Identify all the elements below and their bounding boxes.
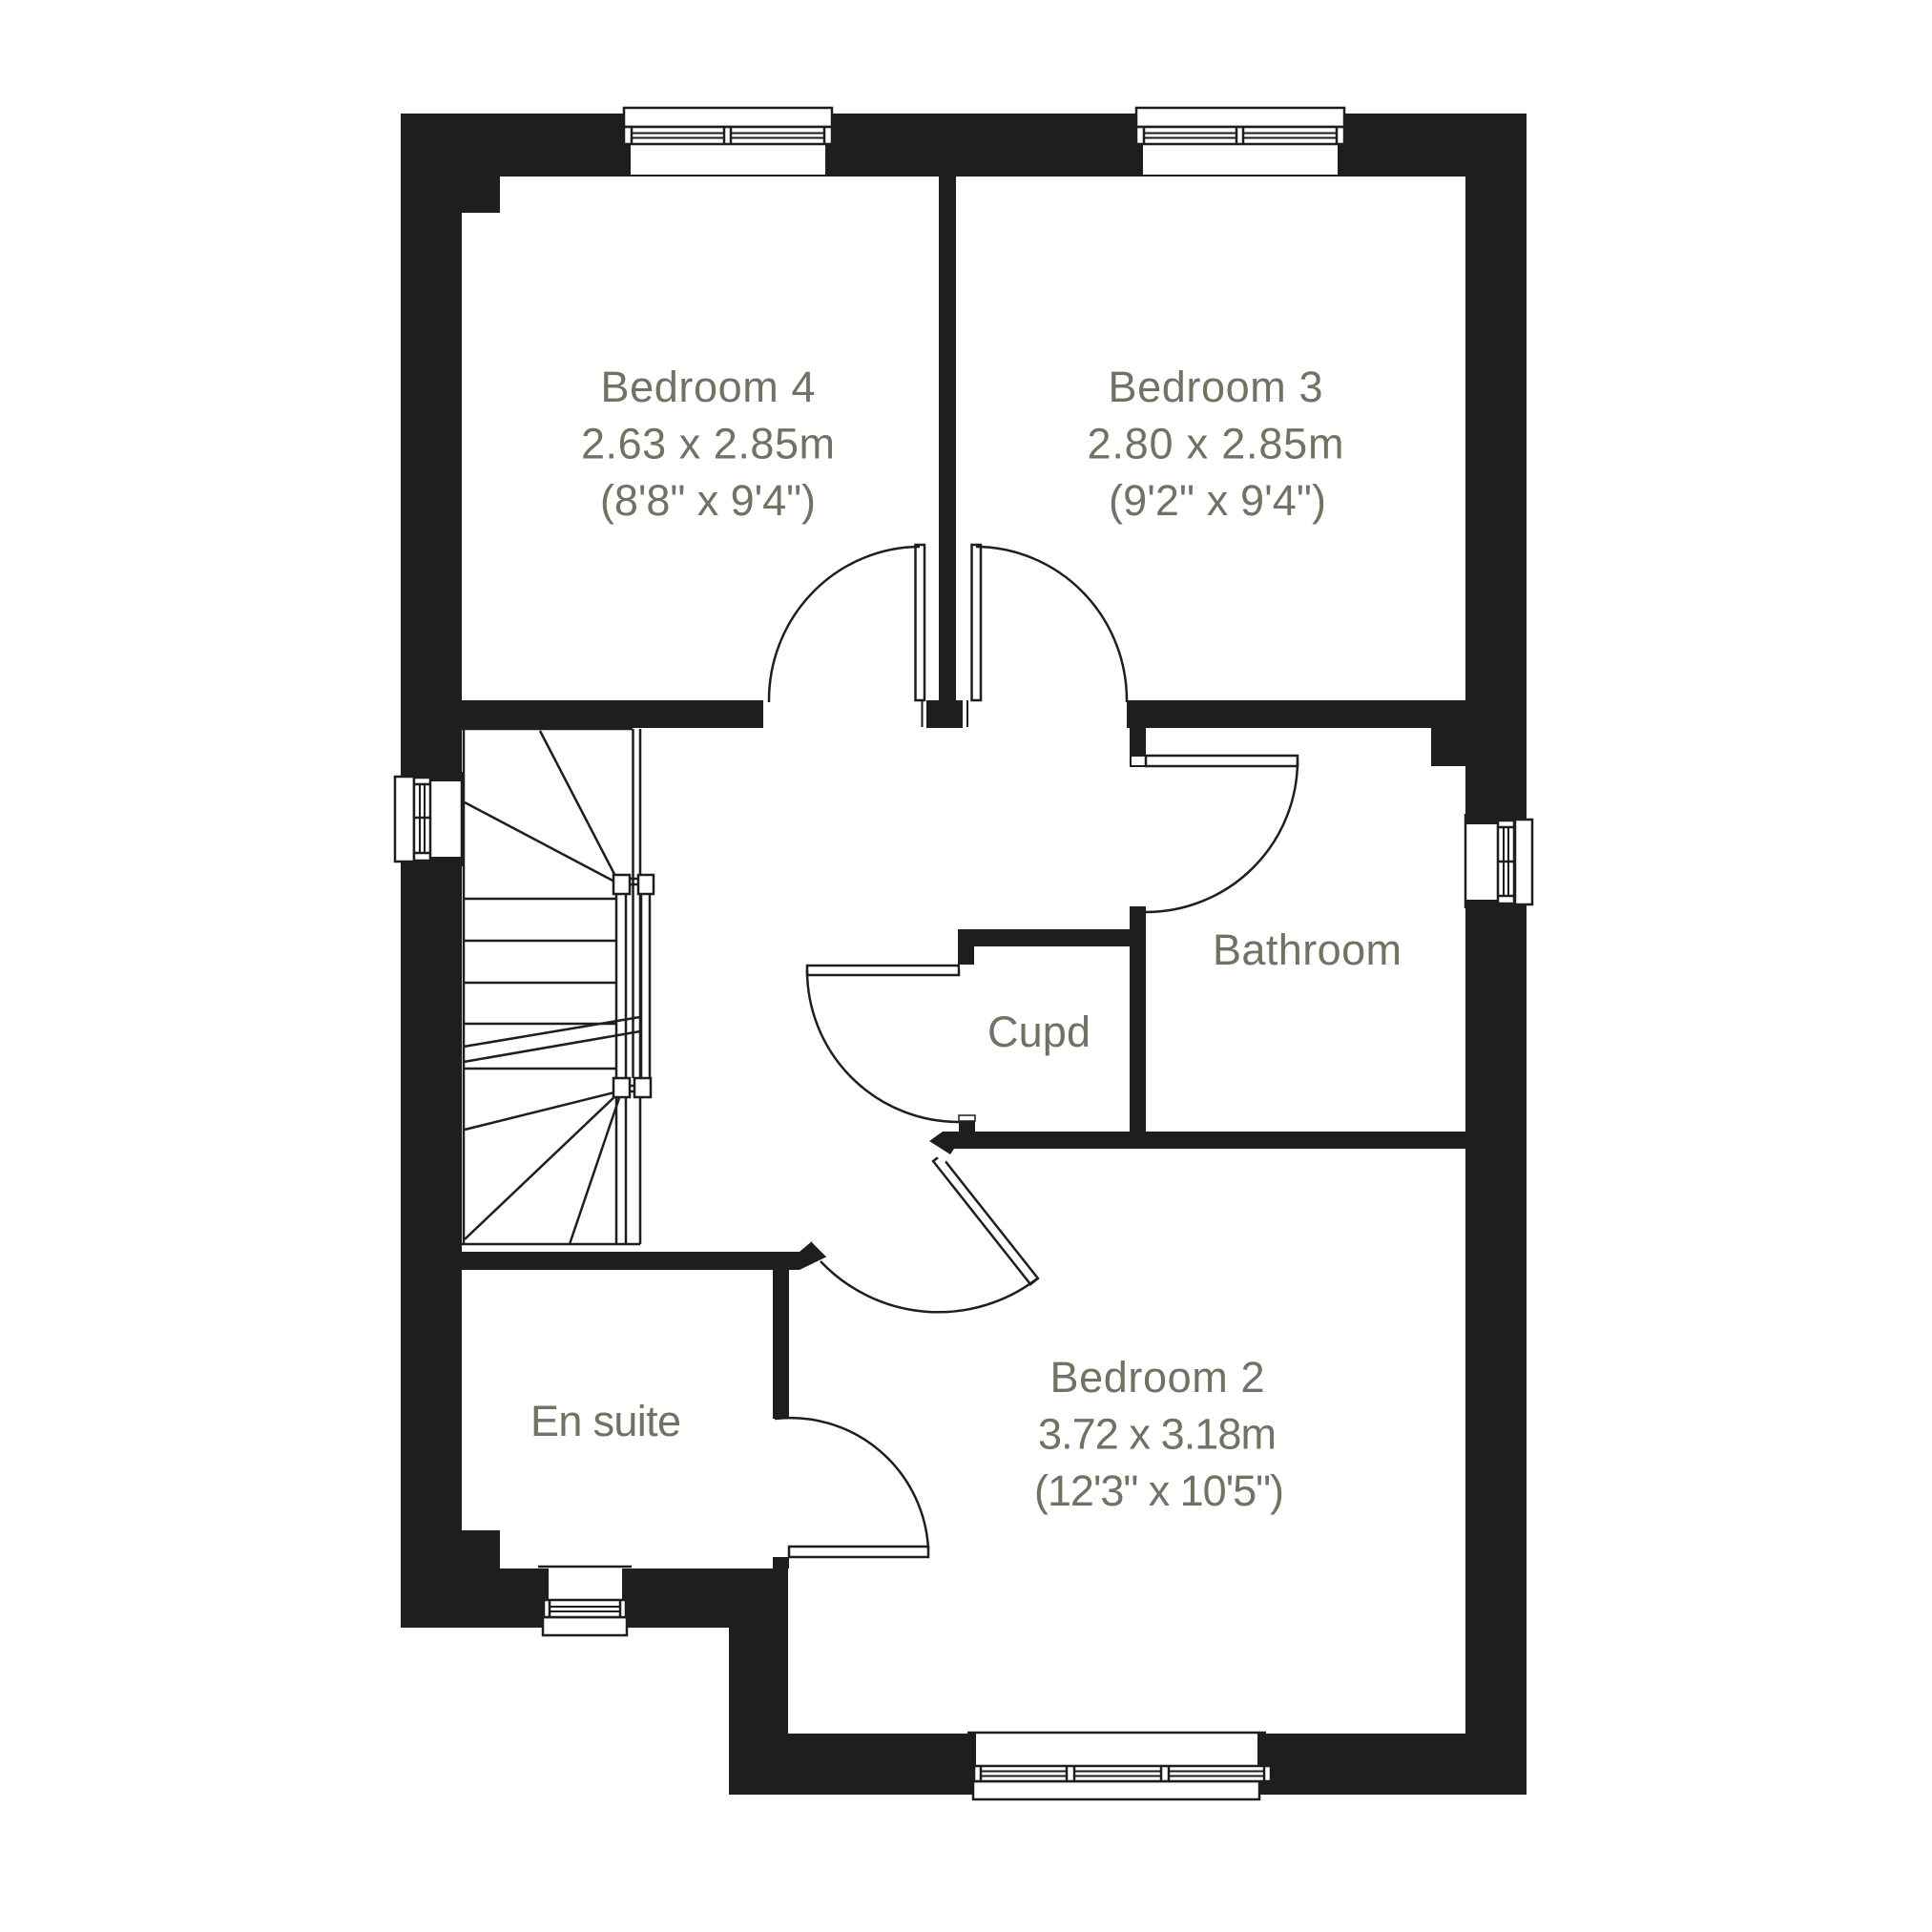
svg-text:(9'2" x 9'4"): (9'2" x 9'4") (1109, 476, 1326, 525)
svg-text:3.72 x 3.18m: 3.72 x 3.18m (1038, 1410, 1277, 1459)
svg-text:En suite: En suite (530, 1397, 681, 1445)
svg-text:2.63 x 2.85m: 2.63 x 2.85m (581, 420, 835, 468)
svg-text:(8'8" x 9'4"): (8'8" x 9'4") (600, 476, 816, 525)
svg-text:Bedroom 3: Bedroom 3 (1109, 363, 1323, 411)
svg-text:Bathroom: Bathroom (1213, 925, 1402, 974)
svg-text:Cupd: Cupd (987, 1008, 1091, 1056)
svg-text:Bedroom 4: Bedroom 4 (601, 363, 816, 411)
svg-text:2.80 x 2.85m: 2.80 x 2.85m (1088, 420, 1344, 468)
svg-text:(12'3" x 10'5"): (12'3" x 10'5") (1034, 1466, 1284, 1515)
svg-text:Bedroom 2: Bedroom 2 (1050, 1353, 1265, 1402)
